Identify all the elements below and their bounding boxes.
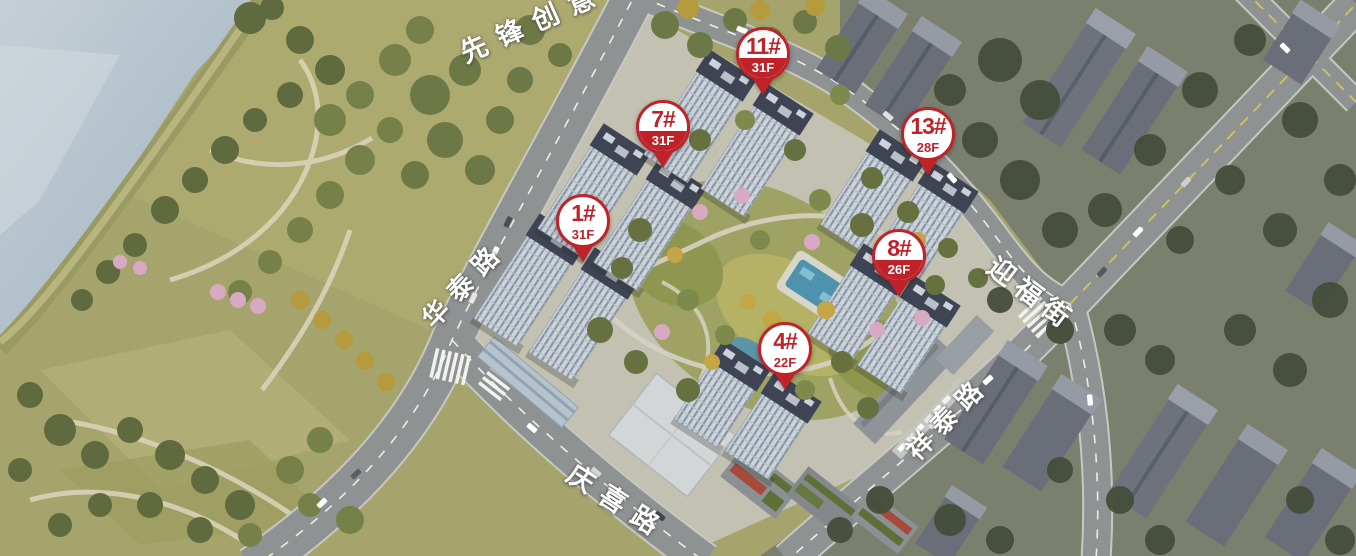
pin-circle: 4# 22F	[758, 322, 812, 376]
pin-tail-icon	[889, 281, 909, 297]
pin-building-number: 8#	[875, 235, 923, 261]
pin-building-number: 11#	[739, 33, 787, 59]
building-pin-4[interactable]: 4# 22F	[757, 322, 813, 390]
pin-tail-icon	[775, 374, 795, 390]
pin-floor-count: 31F	[639, 131, 687, 151]
pin-tail-icon	[753, 79, 773, 95]
pin-floor-count: 31F	[739, 58, 787, 78]
pin-circle: 1# 31F	[556, 194, 610, 248]
pin-circle: 7# 31F	[636, 100, 690, 154]
pin-floor-count: 22F	[761, 353, 809, 373]
aerial-render-background	[0, 0, 1356, 556]
building-pin-1[interactable]: 1# 31F	[555, 194, 611, 262]
pin-floor-count: 28F	[904, 138, 952, 158]
building-pin-7[interactable]: 7# 31F	[635, 100, 691, 168]
pin-circle: 13# 28F	[901, 107, 955, 161]
pin-floor-count: 31F	[559, 225, 607, 245]
pin-circle: 11# 31F	[736, 27, 790, 81]
pin-building-number: 1#	[559, 200, 607, 226]
pin-building-number: 4#	[761, 328, 809, 354]
site-aerial-map: 先锋创意 华泰路 庆喜路 祥泰路 迎福街 11# 31F 7# 31F 13# …	[0, 0, 1356, 556]
building-pin-11[interactable]: 11# 31F	[735, 27, 791, 95]
pin-tail-icon	[573, 246, 593, 262]
pin-tail-icon	[653, 152, 673, 168]
pin-tail-icon	[918, 159, 938, 175]
pin-building-number: 7#	[639, 106, 687, 132]
building-pin-8[interactable]: 8# 26F	[871, 229, 927, 297]
pin-floor-count: 26F	[875, 260, 923, 280]
building-pin-13[interactable]: 13# 28F	[900, 107, 956, 175]
pin-circle: 8# 26F	[872, 229, 926, 283]
pin-building-number: 13#	[904, 113, 952, 139]
